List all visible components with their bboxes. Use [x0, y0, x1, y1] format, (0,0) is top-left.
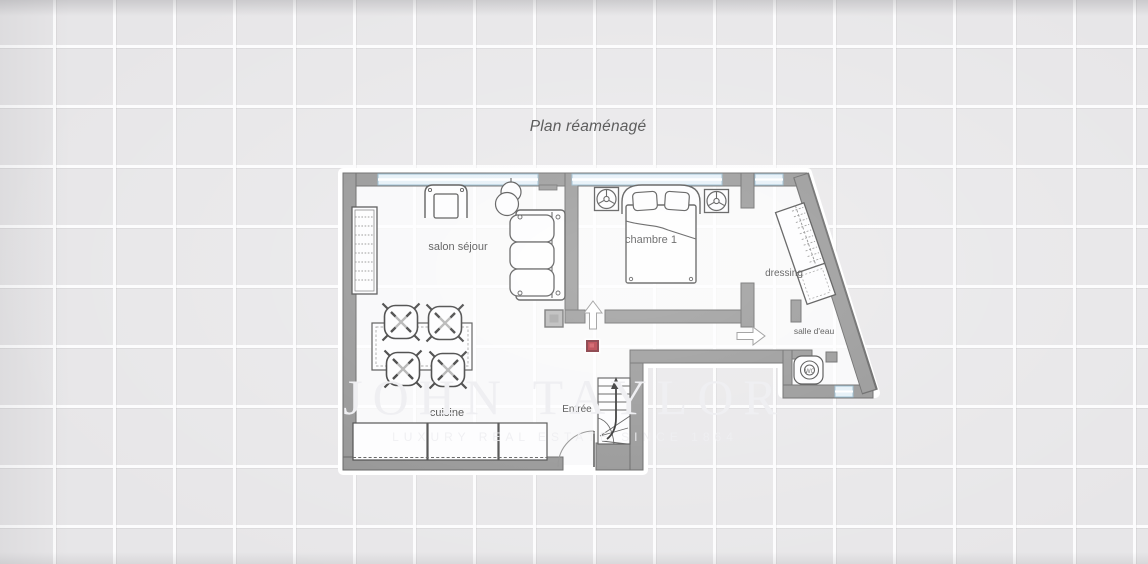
- chair-icon: [385, 351, 422, 388]
- label-entrance: Entrée: [562, 404, 591, 415]
- window-bedroom-icon: [572, 174, 722, 185]
- label-bathroom: salle d'eau: [794, 326, 834, 336]
- wall-bedroom-dressing-stub: [741, 173, 754, 208]
- wall-dressing-bath-stub: [791, 300, 801, 322]
- wall-living-bedroom: [565, 173, 578, 312]
- nightstand-icon: [705, 190, 729, 213]
- wall-bath-south: [783, 385, 873, 398]
- plan-title: Plan réaménagé: [530, 118, 647, 136]
- armchair-icon: [425, 185, 467, 218]
- nightstand-icon: [595, 188, 619, 211]
- label-living-room: salon séjour: [428, 241, 487, 253]
- floorplan-drawing: [330, 160, 890, 490]
- label-kitchen: cuisine: [430, 407, 464, 419]
- label-wc: WC: [805, 369, 815, 375]
- bookshelf-icon: [352, 207, 377, 294]
- floorplan-image: Plan réaménagé: [0, 0, 1148, 564]
- position-marker-icon: [585, 339, 601, 354]
- wall-bedroom-south-left: [565, 310, 585, 323]
- wall-bath-stub: [826, 352, 837, 362]
- chair-icon: [427, 305, 464, 342]
- window-dressing-icon: [755, 174, 783, 185]
- column-icon: [545, 310, 563, 327]
- window-bathroom-icon: [835, 386, 853, 397]
- wall-bedroom-south-right: [605, 310, 754, 323]
- sofa-icon: [510, 210, 565, 300]
- wall-hallway-east: [741, 283, 754, 327]
- stairs-landing: [596, 443, 630, 470]
- label-dressing: dressing: [765, 268, 803, 279]
- wall-hallway-south: [630, 350, 792, 363]
- chair-icon: [430, 352, 467, 389]
- stairs-icon: [598, 377, 630, 444]
- kitchen-counter-icon: [353, 423, 547, 460]
- wall-stairs-east: [630, 350, 643, 470]
- wall-pier-step: [539, 185, 557, 190]
- label-bedroom: chambre 1: [625, 234, 677, 246]
- chair-icon: [383, 304, 420, 341]
